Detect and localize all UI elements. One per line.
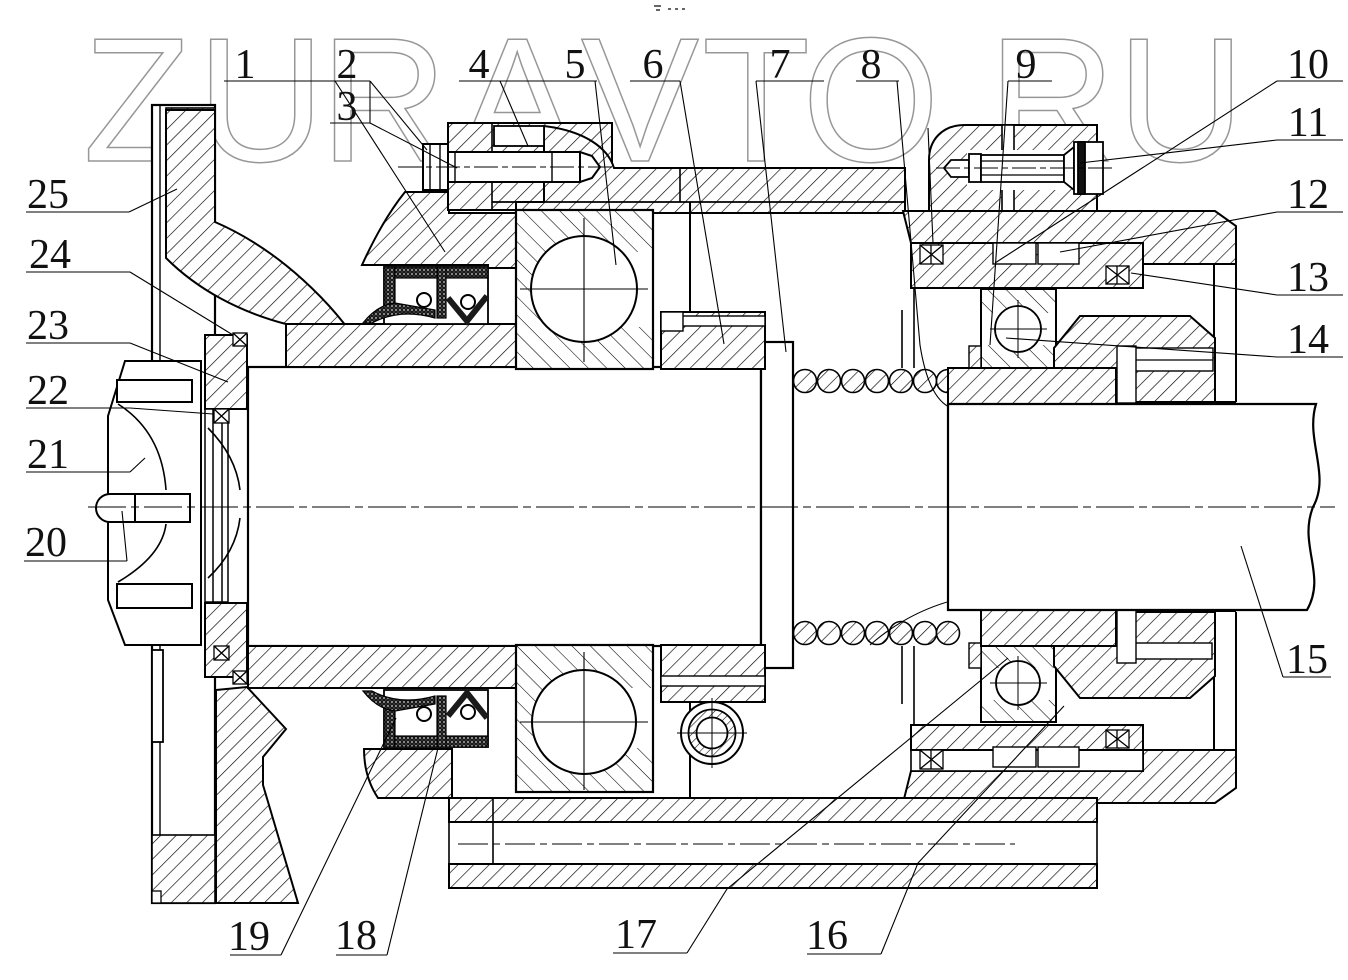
svg-text:20: 20 (25, 520, 67, 566)
svg-text:8: 8 (861, 42, 882, 88)
svg-text:U: U (1117, 1, 1245, 199)
svg-text:25: 25 (27, 172, 69, 218)
svg-text:2: 2 (337, 42, 358, 88)
svg-text:9: 9 (1016, 42, 1037, 88)
svg-text:18: 18 (335, 913, 377, 959)
svg-text:19: 19 (228, 914, 270, 960)
svg-text:21: 21 (27, 432, 69, 478)
svg-text:10: 10 (1287, 42, 1329, 88)
svg-text:13: 13 (1287, 255, 1329, 301)
svg-text:17: 17 (615, 912, 657, 958)
svg-text:11: 11 (1288, 100, 1328, 146)
svg-text:U: U (197, 1, 325, 199)
svg-text:5: 5 (565, 42, 586, 88)
svg-text:4: 4 (469, 42, 490, 88)
svg-text:1: 1 (235, 42, 256, 88)
svg-text:14: 14 (1287, 317, 1329, 363)
svg-text:7: 7 (770, 42, 791, 88)
svg-text:12: 12 (1287, 172, 1329, 218)
svg-text:16: 16 (806, 913, 848, 959)
svg-text:3: 3 (337, 84, 358, 130)
svg-text:15: 15 (1286, 637, 1328, 683)
svg-text:24: 24 (29, 232, 71, 278)
svg-text:23: 23 (27, 303, 69, 349)
svg-text:22: 22 (27, 368, 69, 414)
svg-text:6: 6 (643, 42, 664, 88)
